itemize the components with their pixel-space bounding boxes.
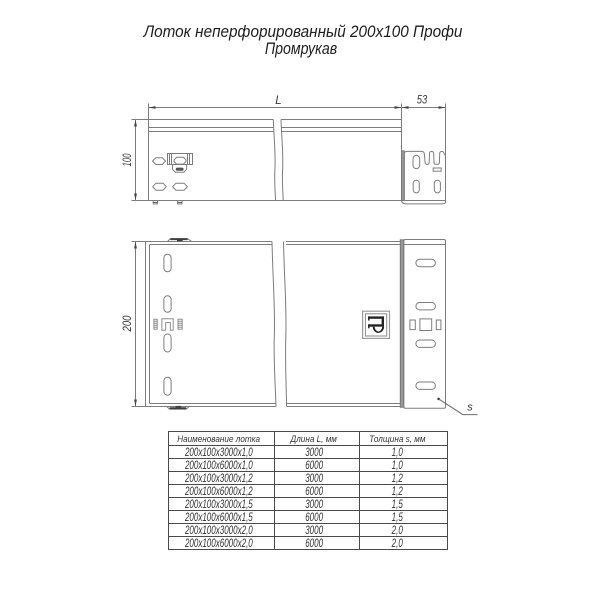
svg-text:100: 100 (122, 153, 134, 166)
svg-text:200: 200 (122, 315, 134, 332)
svg-text:L: L (275, 95, 281, 107)
svg-text:53: 53 (417, 95, 428, 107)
svg-text:s: s (467, 402, 473, 414)
